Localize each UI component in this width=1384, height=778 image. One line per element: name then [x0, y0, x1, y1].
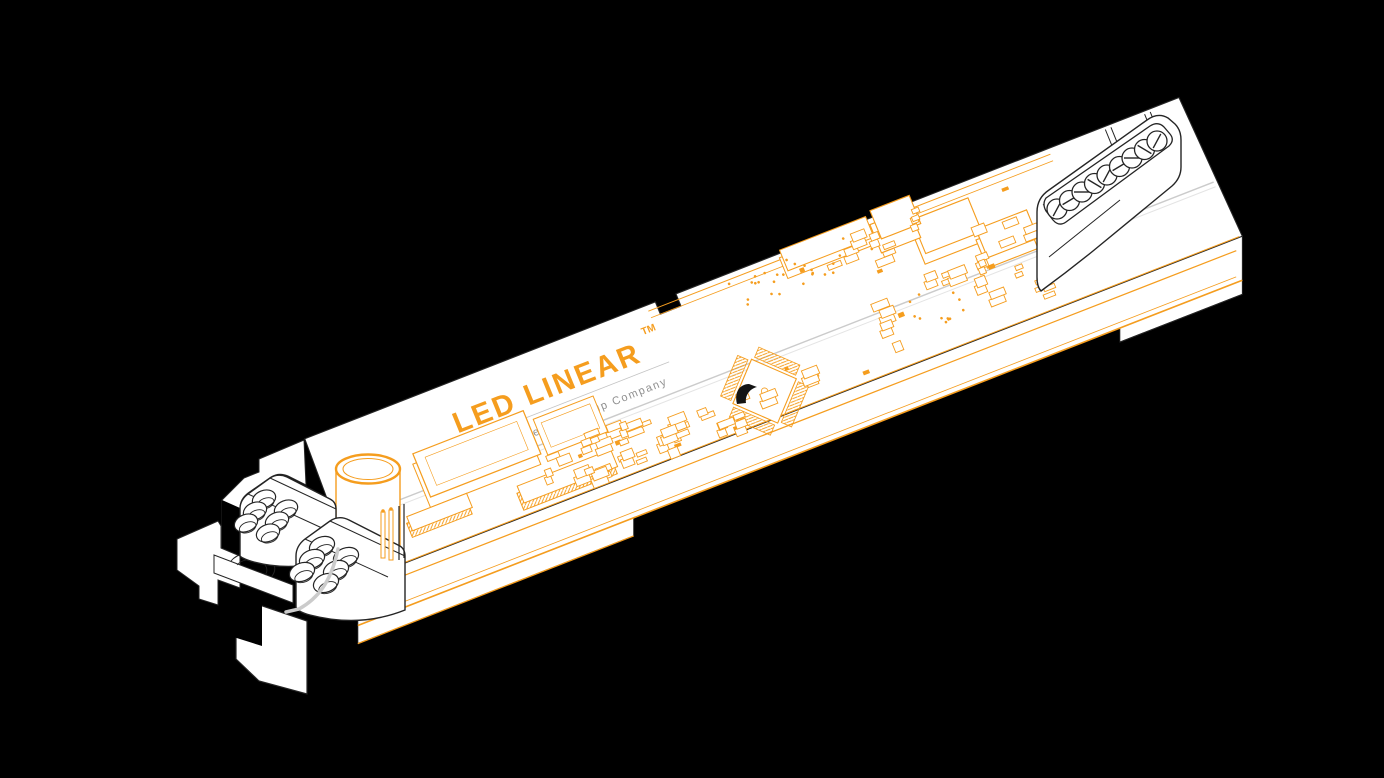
- pin-tip: [389, 507, 393, 511]
- pin: [381, 512, 385, 558]
- pin-tip: [381, 509, 385, 513]
- led-driver-module-illustration: LED LINEAR TM A Fagerhult Group Company: [0, 0, 1384, 778]
- pin: [389, 510, 393, 560]
